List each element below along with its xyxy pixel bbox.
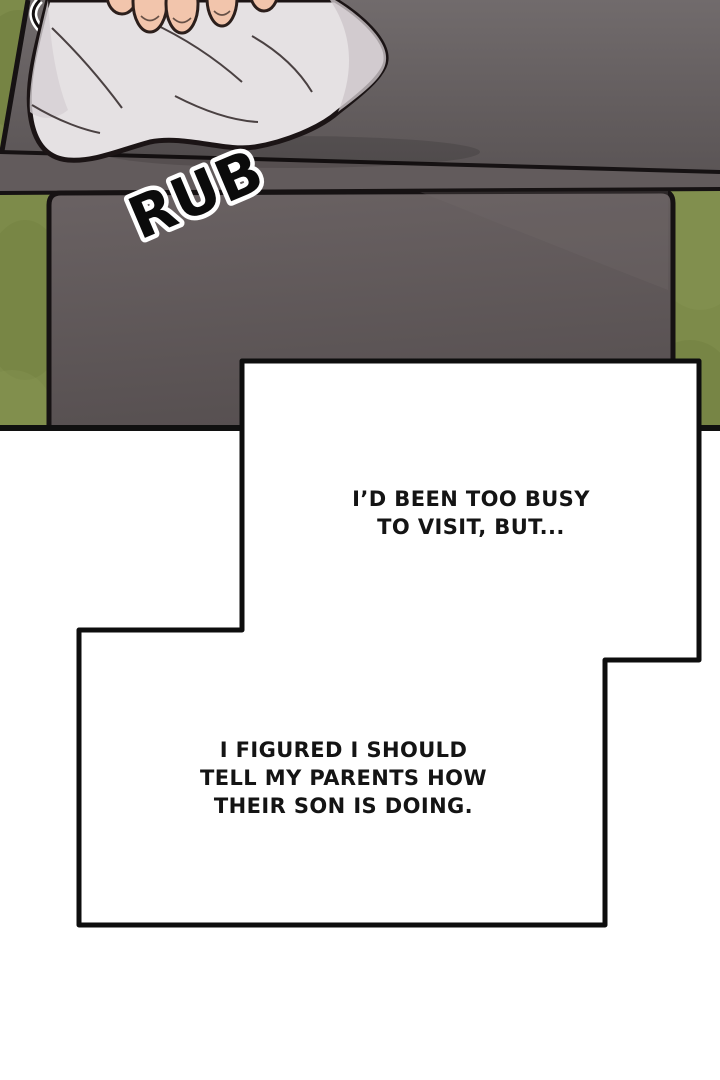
narration-text-1: I’D BEEN TOO BUSY TO VISIT, BUT... [245,485,697,541]
narration-line: TELL MY PARENTS HOW [84,764,603,792]
narration-line: I’D BEEN TOO BUSY [245,485,697,513]
narration-line: THEIR SON IS DOING. [84,792,603,820]
narration-text-2: I FIGURED I SHOULD TELL MY PARENTS HOW T… [84,736,603,820]
narration-box-shape [79,361,699,925]
narration-line: I FIGURED I SHOULD [84,736,603,764]
narration-line: TO VISIT, BUT... [245,513,697,541]
comic-page: RUB I’D BEEN TOO BUSY TO VISIT, BUT... I… [0,0,720,1080]
